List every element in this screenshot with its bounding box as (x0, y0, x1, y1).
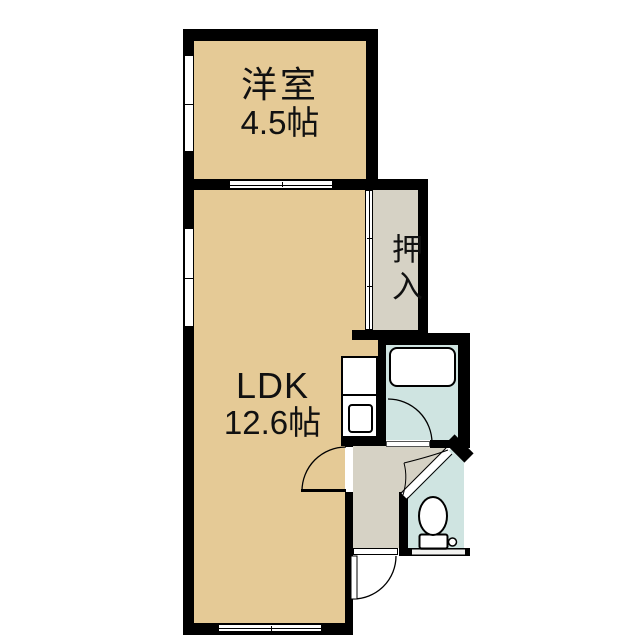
entrance-door-swing-arc (353, 556, 396, 599)
closet-label: 押入 (372, 210, 420, 330)
toilet-door-leaf (401, 448, 452, 499)
floor-plan: 洋室 4.5帖 押入 LDK 12.6帖 (0, 0, 640, 640)
entrance-door-leaf (351, 556, 357, 599)
ldk-label: LDK (190, 367, 355, 405)
ldk-door-leaf (301, 489, 346, 492)
toilet-icon (419, 497, 457, 549)
ldk-door-swing-arc (302, 447, 346, 491)
bathroom-door-swing-arc (388, 399, 432, 443)
western-room-size: 4.5帖 (194, 106, 366, 141)
wall-diagonal (450, 439, 469, 458)
western-room-label: 洋室 (194, 66, 366, 104)
ldk-size: 12.6帖 (190, 406, 355, 441)
